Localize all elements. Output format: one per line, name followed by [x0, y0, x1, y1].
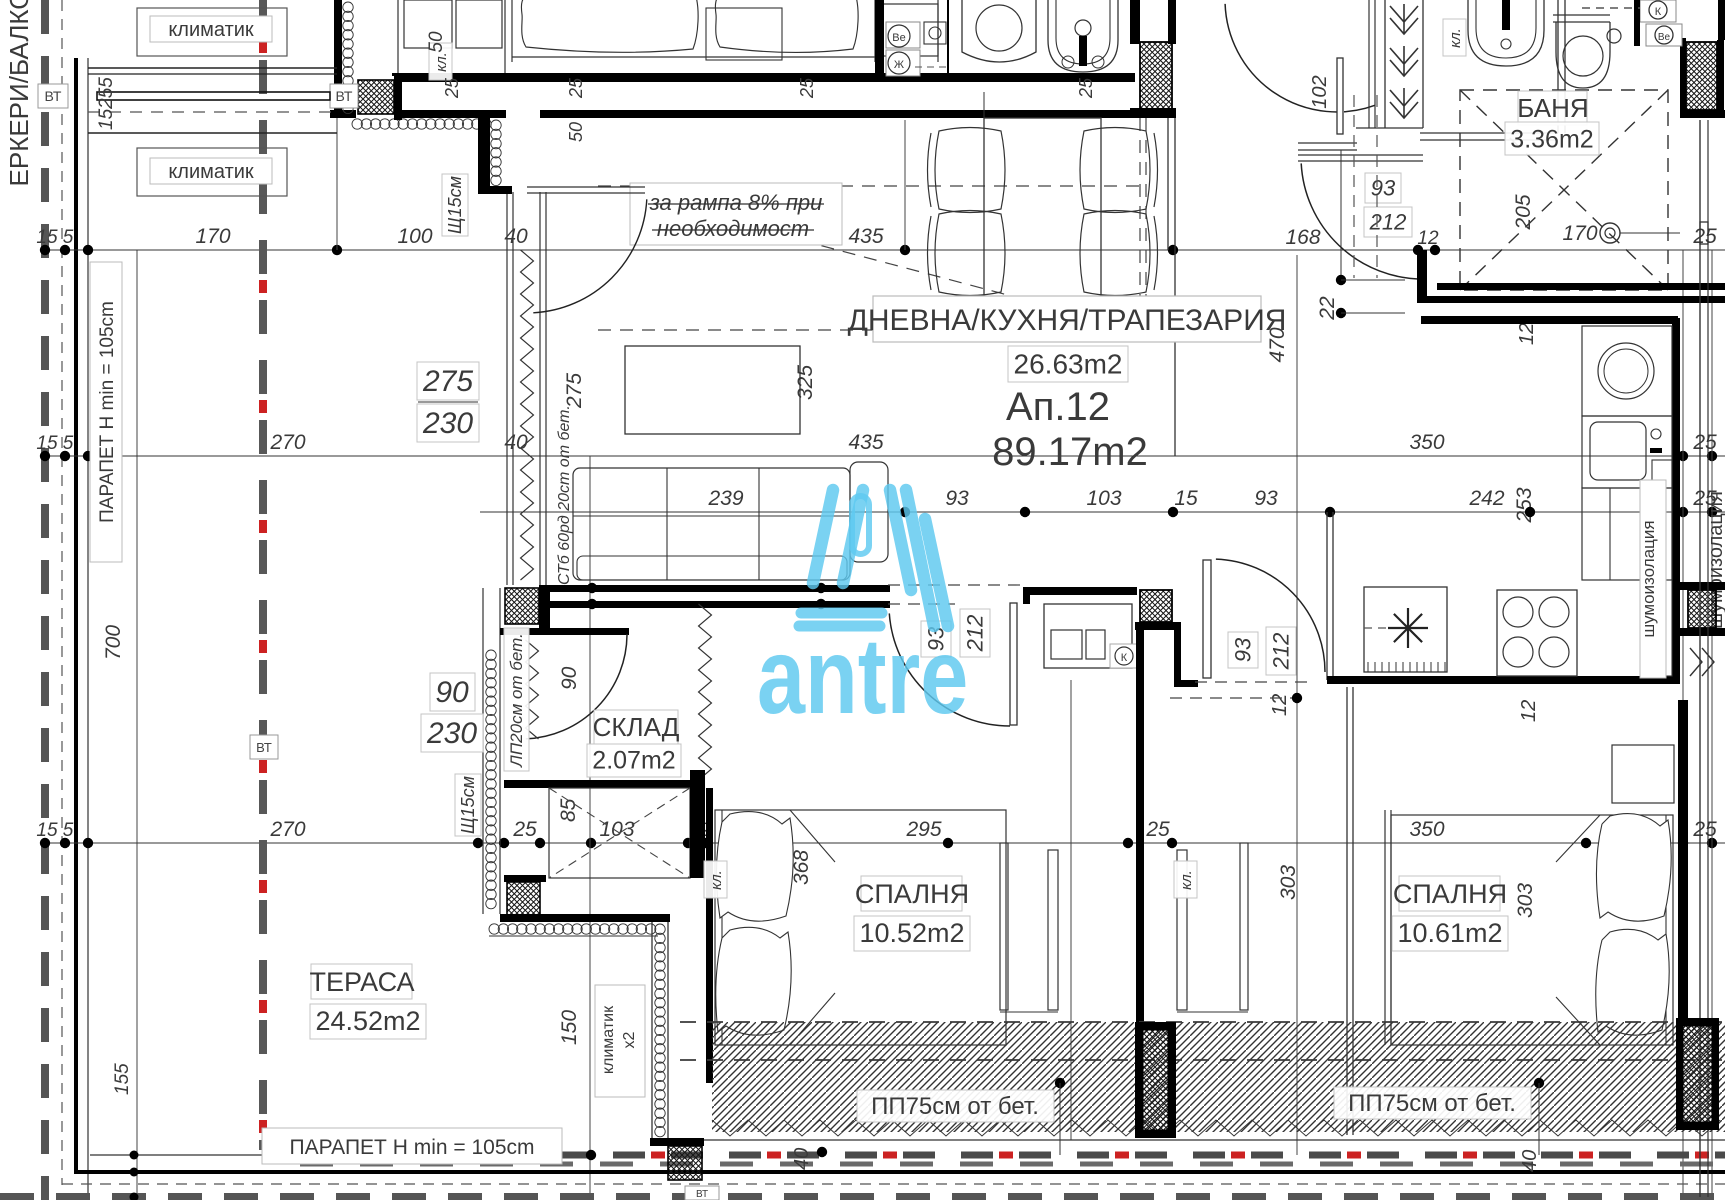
svg-text:БАНЯ: БАНЯ — [1517, 93, 1588, 123]
svg-text:ПП75см от бет.: ПП75см от бет. — [871, 1093, 1039, 1120]
svg-text:15255: 15255 — [96, 77, 117, 130]
svg-text:х2: х2 — [621, 1031, 638, 1048]
svg-text:26.63m2: 26.63m2 — [1014, 349, 1123, 380]
svg-text:50: 50 — [566, 122, 586, 142]
svg-text:15: 15 — [36, 433, 58, 454]
svg-text:15: 15 — [1174, 487, 1198, 510]
svg-text:50: 50 — [426, 31, 447, 53]
svg-text:155: 155 — [112, 1063, 133, 1095]
svg-text:90: 90 — [435, 676, 469, 709]
svg-text:Ап.12: Ап.12 — [1006, 385, 1110, 429]
svg-text:239: 239 — [707, 487, 743, 510]
svg-text:климатик: климатик — [600, 1005, 617, 1074]
svg-text:102: 102 — [1309, 75, 1331, 108]
svg-text:22: 22 — [1316, 296, 1339, 321]
svg-text:кл.: кл. — [1447, 28, 1464, 48]
svg-text:12: 12 — [1516, 323, 1538, 345]
svg-text:СКЛАД: СКЛАД — [593, 712, 680, 742]
svg-text:ВТ: ВТ — [45, 88, 62, 104]
svg-text:Щ15см: Щ15см — [458, 776, 478, 834]
svg-text:ПАРАПЕТ H min = 105cm: ПАРАПЕТ H min = 105cm — [289, 1136, 534, 1159]
svg-text:12: 12 — [1269, 694, 1291, 716]
svg-text:К: К — [1655, 6, 1662, 18]
svg-text:кл.: кл. — [1178, 870, 1195, 890]
svg-text:93: 93 — [1230, 637, 1255, 662]
svg-text:ВТ: ВТ — [256, 740, 272, 755]
svg-text:15: 15 — [36, 820, 58, 841]
svg-text:103: 103 — [1086, 487, 1121, 510]
svg-text:40: 40 — [791, 1148, 813, 1170]
svg-text:Щ15см: Щ15см — [445, 176, 465, 234]
svg-text:253: 253 — [1513, 487, 1536, 523]
svg-text:170: 170 — [1562, 222, 1597, 245]
svg-text:25: 25 — [1076, 77, 1096, 99]
svg-text:Ве: Ве — [892, 32, 905, 44]
svg-text:antre: antre — [757, 615, 968, 736]
svg-text:168: 168 — [1285, 226, 1320, 249]
svg-text:ПП75см от бет.: ПП75см от бет. — [1348, 1090, 1516, 1117]
svg-text:90: 90 — [558, 666, 581, 690]
svg-text:242: 242 — [1468, 487, 1504, 510]
svg-text:325: 325 — [794, 365, 817, 400]
svg-text:ЕРКЕРИ/БАЛКО: ЕРКЕРИ/БАЛКО — [4, 0, 34, 186]
svg-text:5: 5 — [63, 433, 74, 454]
svg-text:необходимост: необходимост — [657, 216, 809, 241]
svg-text:25: 25 — [1692, 225, 1717, 248]
svg-text:25: 25 — [512, 818, 537, 841]
svg-text:5: 5 — [63, 227, 74, 248]
svg-text:СТб 60рд 20ст от бет.: СТб 60рд 20ст от бет. — [556, 405, 573, 585]
svg-text:25: 25 — [1145, 818, 1170, 841]
svg-text:25: 25 — [566, 77, 586, 99]
svg-text:170: 170 — [195, 225, 230, 248]
svg-text:40: 40 — [504, 431, 528, 454]
svg-text:435: 435 — [848, 225, 883, 248]
svg-text:3.36m2: 3.36m2 — [1510, 126, 1593, 154]
svg-text:350: 350 — [1409, 818, 1444, 841]
svg-text:ВТ: ВТ — [696, 1189, 708, 1200]
svg-text:270: 270 — [269, 818, 305, 841]
svg-text:350: 350 — [1409, 431, 1444, 454]
svg-text:275: 275 — [422, 365, 473, 398]
svg-text:93: 93 — [945, 487, 969, 510]
svg-text:шумоизолация: шумоизолация — [1639, 520, 1658, 637]
svg-text:212: 212 — [1369, 209, 1407, 234]
svg-text:93: 93 — [1371, 175, 1396, 200]
svg-text:12: 12 — [1417, 228, 1439, 249]
svg-text:295: 295 — [905, 818, 941, 841]
svg-text:К: К — [1121, 652, 1128, 664]
svg-text:40: 40 — [1519, 1150, 1541, 1172]
svg-text:230: 230 — [422, 407, 473, 440]
svg-text:212: 212 — [1268, 633, 1293, 671]
svg-text:кл.: кл. — [708, 870, 725, 890]
svg-text:93: 93 — [1254, 487, 1278, 510]
svg-text:270: 270 — [269, 431, 305, 454]
svg-text:12: 12 — [1518, 700, 1540, 722]
svg-text:303: 303 — [1514, 883, 1537, 918]
svg-text:климатик: климатик — [168, 19, 254, 41]
svg-text:ТЕРАСА: ТЕРАСА — [309, 967, 414, 997]
svg-text:СПАЛНЯ: СПАЛНЯ — [1393, 879, 1507, 909]
svg-text:за рампа 8% при: за рампа 8% при — [649, 190, 823, 215]
svg-text:205: 205 — [1512, 194, 1535, 230]
svg-text:25: 25 — [1692, 431, 1717, 454]
svg-text:40: 40 — [504, 225, 528, 248]
svg-text:435: 435 — [848, 431, 883, 454]
svg-text:СПАЛНЯ: СПАЛНЯ — [855, 879, 969, 909]
svg-text:ВТ: ВТ — [336, 88, 353, 104]
svg-text:25: 25 — [1692, 818, 1717, 841]
svg-text:кл.: кл. — [433, 52, 450, 72]
svg-text:230: 230 — [426, 717, 477, 750]
svg-text:25: 25 — [797, 77, 817, 99]
svg-text:700: 700 — [102, 625, 125, 660]
svg-text:100: 100 — [397, 225, 432, 248]
svg-text:303: 303 — [1277, 865, 1300, 900]
svg-text:10.61m2: 10.61m2 — [1397, 918, 1502, 948]
svg-text:24.52m2: 24.52m2 — [315, 1006, 420, 1036]
svg-text:85: 85 — [557, 798, 580, 822]
svg-text:15: 15 — [36, 227, 58, 248]
svg-text:климатик: климатик — [168, 161, 254, 183]
svg-text:275: 275 — [563, 373, 586, 409]
svg-text:103: 103 — [599, 818, 634, 841]
svg-text:2.07m2: 2.07m2 — [592, 747, 675, 775]
svg-text:ДНЕВНА/КУХНЯ/ТРАПЕЗАРИЯ: ДНЕВНА/КУХНЯ/ТРАПЕЗАРИЯ — [848, 304, 1287, 337]
svg-text:5: 5 — [63, 820, 74, 841]
svg-text:150: 150 — [558, 1010, 581, 1045]
svg-text:25: 25 — [442, 77, 462, 99]
svg-text:ПАРАПЕТ H min = 105cm: ПАРАПЕТ H min = 105cm — [97, 301, 118, 523]
svg-text:Ж: Ж — [894, 59, 904, 71]
svg-text:10.52m2: 10.52m2 — [859, 918, 964, 948]
svg-text:ЛП20см от бет.: ЛП20см от бет. — [507, 633, 526, 768]
svg-text:89.17m2: 89.17m2 — [992, 430, 1148, 474]
svg-text:Ве: Ве — [1658, 32, 1671, 43]
